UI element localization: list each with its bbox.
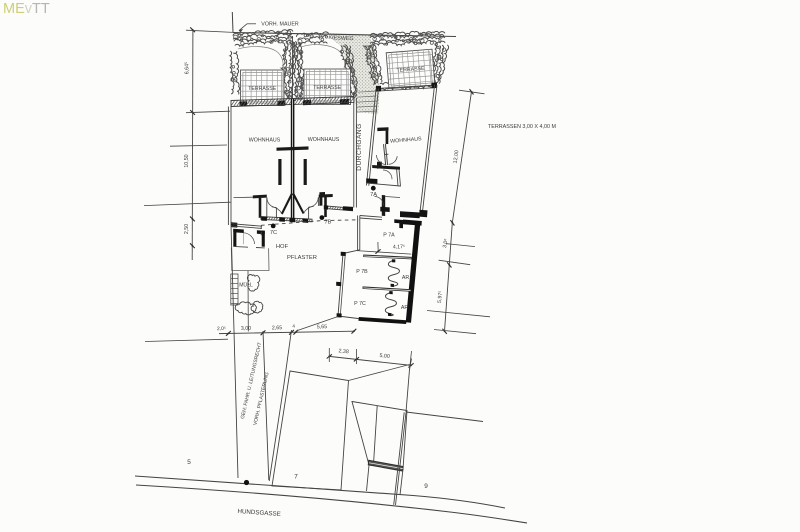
svg-text:WOHNHAUS: WOHNHAUS: [308, 137, 340, 143]
svg-text:AR: AR: [402, 275, 410, 281]
svg-text:MÜLL: MÜLL: [239, 282, 253, 289]
svg-text:7A: 7A: [370, 192, 377, 198]
svg-text:4,17⁵: 4,17⁵: [393, 244, 405, 250]
svg-text:P 7A: P 7A: [383, 233, 395, 239]
svg-text:P 7C: P 7C: [354, 301, 366, 307]
svg-text:5: 5: [187, 459, 191, 466]
svg-text:9: 9: [424, 483, 428, 490]
svg-text:DURCHGANG: DURCHGANG: [356, 123, 363, 171]
svg-text:2,50: 2,50: [184, 224, 190, 234]
svg-text:VORH. MAUER: VORH. MAUER: [261, 22, 299, 28]
svg-text:7: 7: [294, 474, 298, 481]
svg-text:6,64⁵: 6,64⁵: [184, 62, 190, 75]
svg-text:2,0⁵: 2,0⁵: [217, 326, 226, 332]
svg-text:HOF: HOF: [276, 244, 289, 250]
svg-text:5,97⁵: 5,97⁵: [437, 290, 444, 303]
svg-text:P 7B: P 7B: [356, 269, 368, 275]
svg-text:5,00: 5,00: [379, 353, 390, 360]
svg-text:3,00: 3,00: [241, 326, 251, 332]
svg-text:2,38: 2,38: [338, 348, 349, 355]
svg-text:WOHNHAUS: WOHNHAUS: [249, 138, 281, 144]
svg-text:TERRASSEN 3,00 X 4,00 M: TERRASSEN 3,00 X 4,00 M: [488, 124, 557, 130]
svg-text:TERRASSE: TERRASSE: [313, 85, 342, 91]
svg-text:MEvTT: MEvTT: [3, 1, 50, 17]
svg-text:AR: AR: [401, 305, 409, 311]
svg-text:TERRASSE: TERRASSE: [248, 86, 277, 92]
svg-text:PFLASTER: PFLASTER: [287, 255, 317, 261]
svg-text:5,65: 5,65: [317, 324, 327, 330]
svg-text:2,65: 2,65: [272, 325, 282, 331]
svg-text:10,50: 10,50: [184, 154, 190, 167]
svg-text:7C: 7C: [270, 230, 277, 236]
